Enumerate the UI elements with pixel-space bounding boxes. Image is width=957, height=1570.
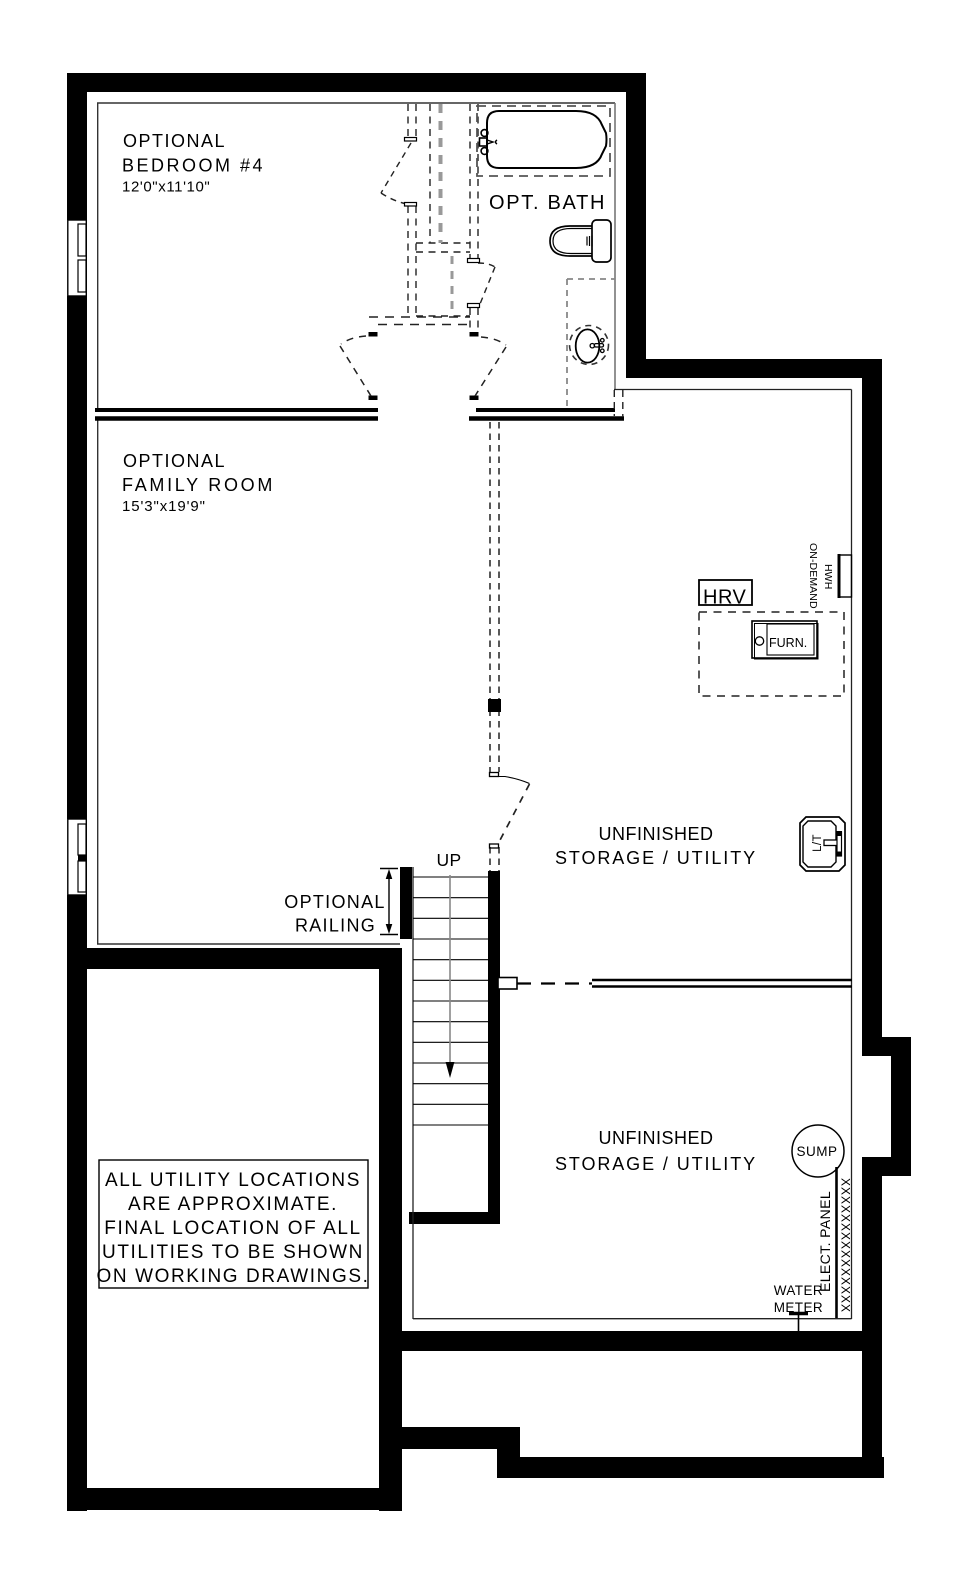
- svg-text:SUMP: SUMP: [796, 1144, 837, 1159]
- svg-text:12'0"x11'10": 12'0"x11'10": [122, 179, 210, 196]
- svg-text:OPTIONAL: OPTIONAL: [284, 892, 385, 912]
- svg-text:ON WORKING DRAWINGS.: ON WORKING DRAWINGS.: [96, 1266, 369, 1287]
- svg-text:ARE APPROXIMATE.: ARE APPROXIMATE.: [128, 1194, 338, 1215]
- svg-text:ON-DEMAND: ON-DEMAND: [807, 543, 819, 609]
- svg-text:RAILING: RAILING: [295, 916, 376, 936]
- svg-text:15'3"x19'9": 15'3"x19'9": [122, 498, 206, 515]
- svg-text:OPT. BATH: OPT. BATH: [489, 192, 606, 214]
- svg-text:UNFINISHED: UNFINISHED: [598, 824, 713, 844]
- svg-text:L/T: L/T: [812, 834, 824, 852]
- svg-text:ELECT. PANEL: ELECT. PANEL: [817, 1191, 833, 1292]
- svg-text:WATER: WATER: [774, 1283, 823, 1298]
- svg-text:STORAGE / UTILITY: STORAGE / UTILITY: [555, 848, 757, 868]
- svg-text:FAMILY ROOM: FAMILY ROOM: [122, 475, 275, 495]
- svg-text:HWH: HWH: [822, 564, 834, 589]
- svg-text:FURN.: FURN.: [769, 636, 807, 650]
- svg-text:BEDROOM #4: BEDROOM #4: [122, 156, 265, 176]
- svg-text:METER: METER: [774, 1300, 823, 1315]
- svg-text:UNFINISHED: UNFINISHED: [598, 1128, 713, 1148]
- svg-text:OPTIONAL: OPTIONAL: [123, 451, 226, 471]
- svg-text:UP: UP: [436, 850, 461, 870]
- svg-text:UTILITIES TO BE SHOWN: UTILITIES TO BE SHOWN: [102, 1242, 364, 1263]
- svg-text:XXXXXXXXXXXXXXX: XXXXXXXXXXXXXXX: [839, 1178, 853, 1313]
- svg-text:STORAGE / UTILITY: STORAGE / UTILITY: [555, 1154, 757, 1174]
- svg-text:FINAL LOCATION OF ALL: FINAL LOCATION OF ALL: [104, 1218, 361, 1239]
- svg-text:OPTIONAL: OPTIONAL: [123, 131, 226, 151]
- svg-text:HRV: HRV: [703, 587, 747, 609]
- svg-text:ALL UTILITY LOCATIONS: ALL UTILITY LOCATIONS: [105, 1170, 361, 1191]
